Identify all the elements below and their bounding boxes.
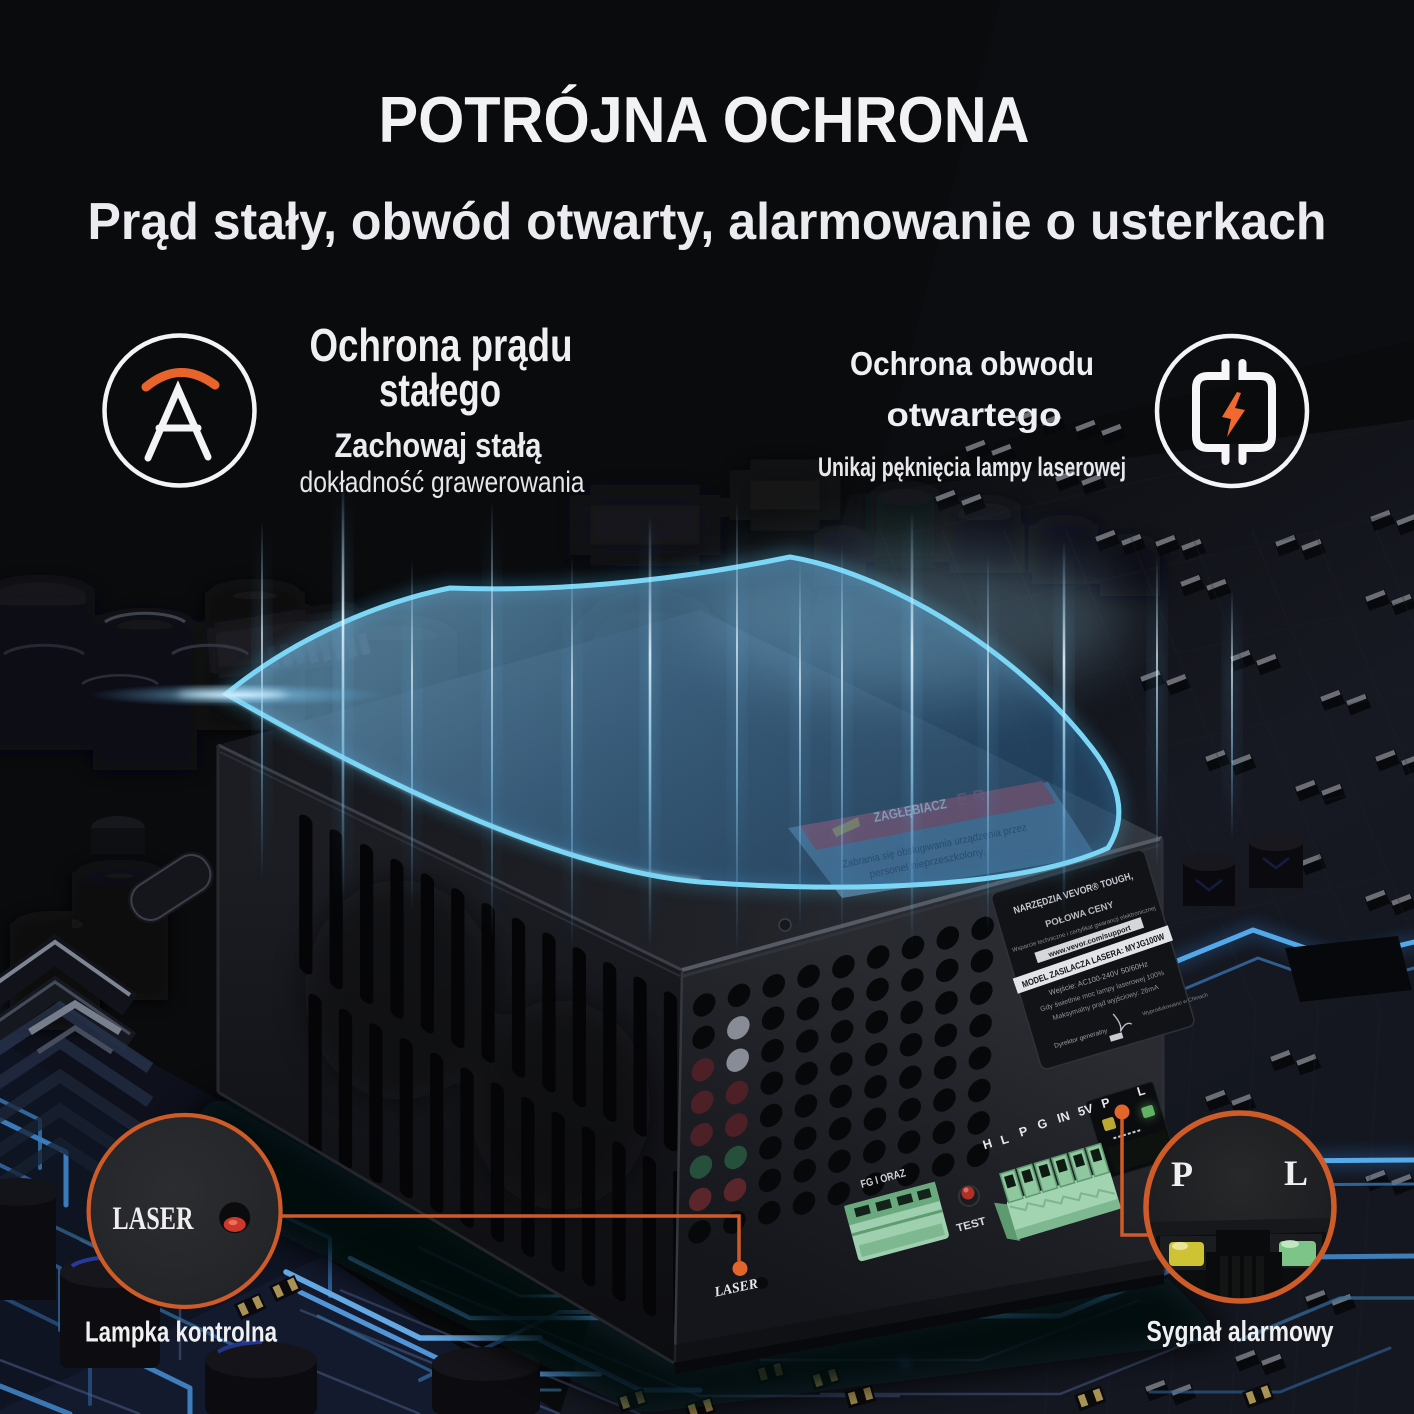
svg-text:LASER: LASER (113, 1201, 195, 1237)
svg-text:otwartego: otwartego (887, 396, 1062, 433)
svg-text:L: L (1284, 1153, 1308, 1193)
svg-text:Lampka kontrolna: Lampka kontrolna (85, 1317, 278, 1349)
svg-text:POTRÓJNA OCHRONA: POTRÓJNA OCHRONA (379, 83, 1030, 156)
svg-text:Ochrona obwodu: Ochrona obwodu (850, 345, 1094, 382)
svg-text:dokładność grawerowania: dokładność grawerowania (300, 466, 585, 499)
svg-text:P: P (1171, 1154, 1193, 1194)
svg-text:Sygnał alarmowy: Sygnał alarmowy (1147, 1316, 1334, 1348)
svg-text:Prąd stały, obwód otwarty, ala: Prąd stały, obwód otwarty, alarmowanie o… (88, 193, 1327, 251)
svg-text:Unikaj pęknięcia lampy laserow: Unikaj pęknięcia lampy laserowej (818, 452, 1126, 482)
svg-text:Zachowaj stałą: Zachowaj stałą (335, 427, 543, 465)
svg-text:stałego: stałego (379, 364, 501, 416)
